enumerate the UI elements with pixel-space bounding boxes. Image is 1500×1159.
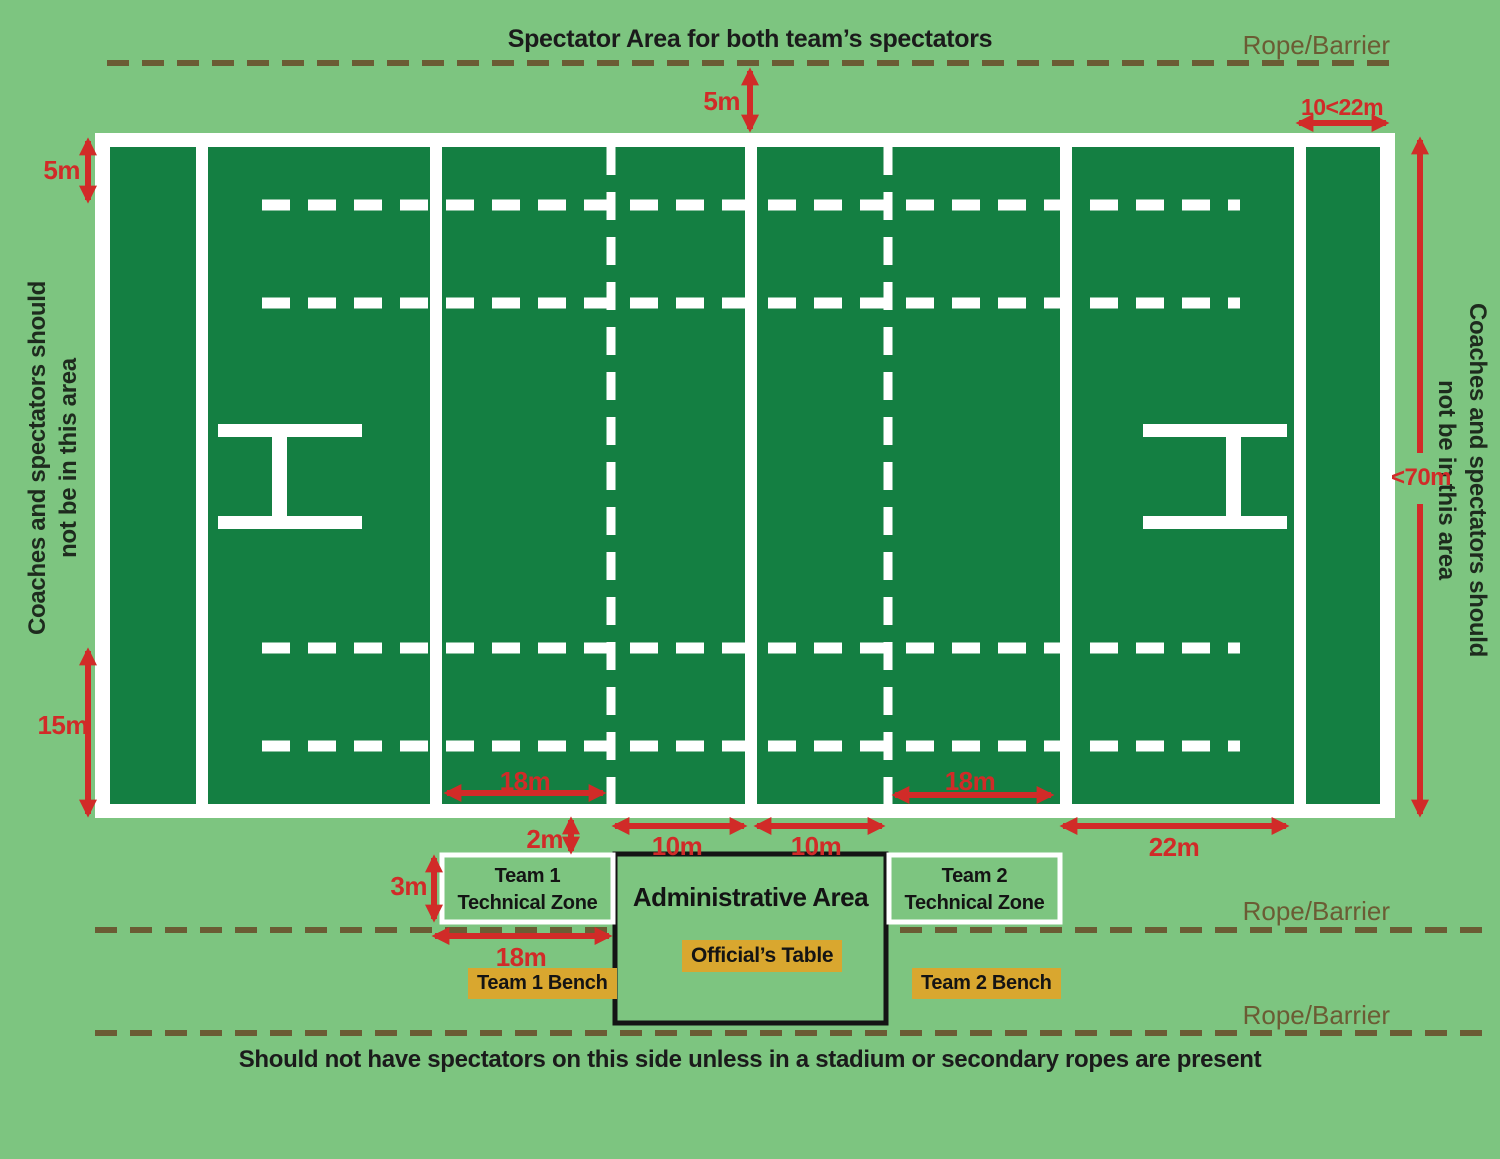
- team2-zone-line2: Technical Zone: [889, 890, 1060, 917]
- rope-barrier-label-top: Rope/Barrier: [1150, 30, 1390, 61]
- coaches-note-line2: not be in this area: [53, 218, 84, 698]
- team2-technical-zone-label: Team 2 Technical Zone: [889, 863, 1060, 917]
- goal-post-crossbar: [272, 424, 287, 529]
- administrative-area-box: [615, 854, 886, 1023]
- twenty-two-line-left: [430, 147, 442, 804]
- goal-line-left: [196, 147, 208, 804]
- officials-table-label: Official’s Table: [682, 940, 842, 972]
- coaches-note-left: Coaches and spectators should not be in …: [22, 218, 84, 698]
- goal-post-bar: [218, 516, 362, 529]
- dim-5m-top: 5m: [650, 86, 740, 117]
- administrative-area-label: Administrative Area: [615, 882, 886, 913]
- rugby-field-layout-diagram: Spectator Area for both team’s spectator…: [0, 0, 1500, 1159]
- rope-barrier-label-bottom: Rope/Barrier: [1150, 1000, 1390, 1031]
- dim-2m: 2m: [505, 824, 563, 855]
- twenty-two-line-right: [1060, 147, 1072, 804]
- dim-10m-left: 10m: [632, 831, 722, 862]
- dim-15m-left: 15m: [20, 710, 88, 741]
- team1-technical-zone-label: Team 1 Technical Zone: [442, 863, 613, 917]
- team1-zone-line1: Team 1: [442, 863, 613, 890]
- goal-post-crossbar: [1226, 424, 1241, 529]
- goal-post-bar: [1143, 424, 1287, 437]
- dim-70m: <70m: [1386, 464, 1456, 492]
- no-spectators-footer-note: Should not have spectators on this side …: [0, 1046, 1500, 1074]
- dim-5m-left: 5m: [20, 155, 80, 186]
- playing-field: [95, 133, 1395, 818]
- goal-post-bar: [1143, 516, 1287, 529]
- dim-18m-inner-left: 18m: [480, 766, 570, 797]
- team2-zone-line1: Team 2: [889, 863, 1060, 890]
- team2-bench-label: Team 2 Bench: [912, 968, 1061, 999]
- team1-bench-label: Team 1 Bench: [468, 968, 617, 999]
- team1-zone-line2: Technical Zone: [442, 890, 613, 917]
- coaches-note-line1: Coaches and spectators should: [1462, 240, 1493, 720]
- goal-post-bar: [218, 424, 362, 437]
- coaches-note-line1: Coaches and spectators should: [22, 218, 53, 698]
- rope-barrier-label-middle: Rope/Barrier: [1150, 896, 1390, 927]
- pitch-diagram: [0, 0, 1500, 1159]
- goal-line-right: [1294, 147, 1306, 804]
- halfway-line: [745, 147, 757, 804]
- dim-ingoal-depth: 10<22m: [1292, 94, 1392, 121]
- dim-18m-inner-right: 18m: [925, 766, 1015, 797]
- dim-10m-right: 10m: [771, 831, 861, 862]
- dim-3m: 3m: [372, 871, 427, 902]
- dim-22m: 22m: [1129, 832, 1219, 863]
